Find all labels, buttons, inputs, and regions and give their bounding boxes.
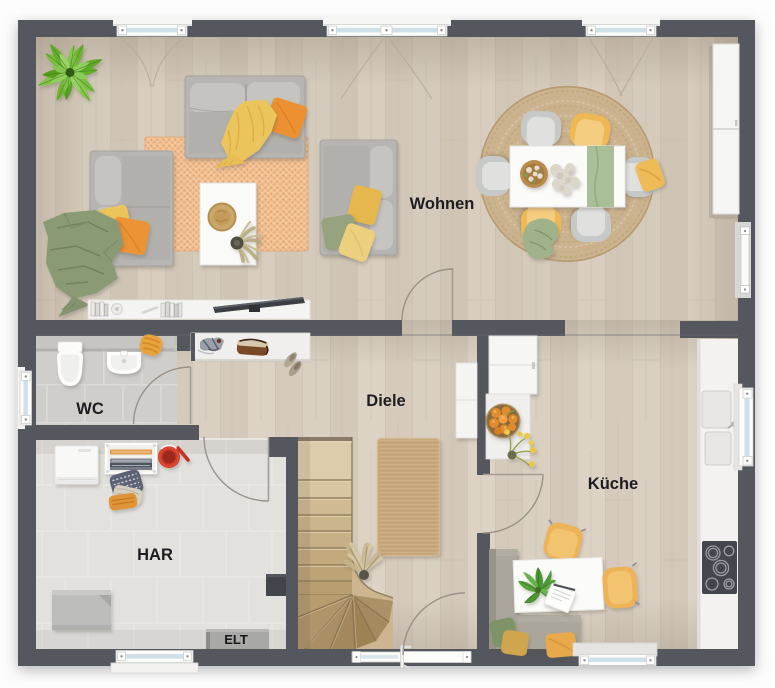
svg-text:Küche: Küche [588, 475, 638, 493]
svg-text:Diele: Diele [366, 392, 405, 410]
svg-text:Wohnen: Wohnen [410, 195, 475, 213]
svg-text:WC: WC [76, 400, 104, 418]
svg-text:HAR: HAR [137, 546, 173, 564]
svg-text:ELT: ELT [224, 632, 248, 647]
